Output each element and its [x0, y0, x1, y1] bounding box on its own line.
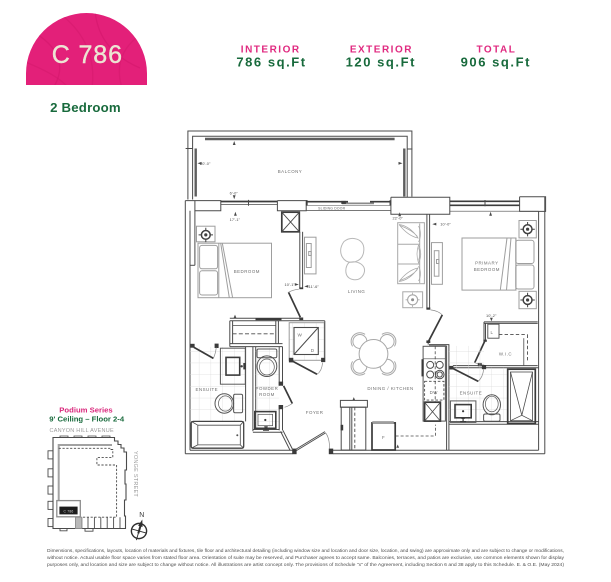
- svg-text:LIVING: LIVING: [348, 289, 365, 294]
- svg-text:ENSUITE: ENSUITE: [460, 390, 483, 395]
- svg-text:YONGE STREET: YONGE STREET: [132, 451, 138, 497]
- svg-text:2 Bedroom: 2 Bedroom: [50, 100, 121, 115]
- svg-text:W.I.C: W.I.C: [499, 351, 512, 356]
- svg-text:BEDROOM: BEDROOM: [234, 269, 260, 274]
- svg-text:DW: DW: [430, 390, 439, 395]
- svg-text:DINING / KITCHEN: DINING / KITCHEN: [367, 386, 413, 391]
- svg-text:22'-0": 22'-0": [393, 216, 404, 221]
- svg-text:10'-2": 10'-2": [486, 313, 497, 318]
- svg-text:F: F: [382, 435, 385, 440]
- svg-text:9' Ceiling – Floor 2-4: 9' Ceiling – Floor 2-4: [49, 415, 125, 424]
- svg-text:N: N: [139, 512, 144, 519]
- svg-text:PRIMARY: PRIMARY: [475, 260, 498, 265]
- svg-text:C 786: C 786: [52, 41, 123, 69]
- svg-text:ENSUITE: ENSUITE: [196, 387, 219, 392]
- svg-text:Dimensions, specifications, la: Dimensions, specifications, layouts, loc…: [47, 548, 564, 553]
- svg-text:CANYON HILL AVENUE: CANYON HILL AVENUE: [49, 428, 113, 434]
- svg-text:BEDROOM: BEDROOM: [474, 267, 500, 272]
- svg-text:purposes only, and location an: purposes only, and location and size are…: [47, 562, 564, 567]
- svg-text:C 786: C 786: [63, 510, 73, 514]
- svg-text:SLIDING DOOR: SLIDING DOOR: [318, 206, 345, 210]
- svg-text:FOYER: FOYER: [306, 410, 324, 415]
- svg-text:POWDER: POWDER: [256, 386, 279, 391]
- svg-text:906 sq.Ft: 906 sq.Ft: [461, 55, 531, 70]
- svg-text:120 sq.Ft: 120 sq.Ft: [346, 55, 416, 70]
- svg-text:6'-0": 6'-0": [230, 191, 239, 196]
- svg-text:786 sq.Ft: 786 sq.Ft: [236, 55, 306, 70]
- svg-text:20'-0": 20'-0": [200, 161, 211, 166]
- svg-text:L: L: [491, 330, 494, 335]
- svg-text:17'-1": 17'-1": [230, 217, 241, 222]
- svg-text:W: W: [298, 332, 303, 337]
- svg-text:ROOM: ROOM: [259, 392, 275, 397]
- svg-text:10'-0": 10'-0": [440, 222, 451, 227]
- svg-text:without notice. Actual usable: without notice. Actual usable floor spac…: [47, 555, 565, 560]
- svg-text:Podium Series: Podium Series: [59, 406, 112, 415]
- svg-text:11'-6": 11'-6": [309, 284, 320, 289]
- svg-text:10'-1": 10'-1": [285, 282, 296, 287]
- svg-text:BALCONY: BALCONY: [278, 169, 302, 174]
